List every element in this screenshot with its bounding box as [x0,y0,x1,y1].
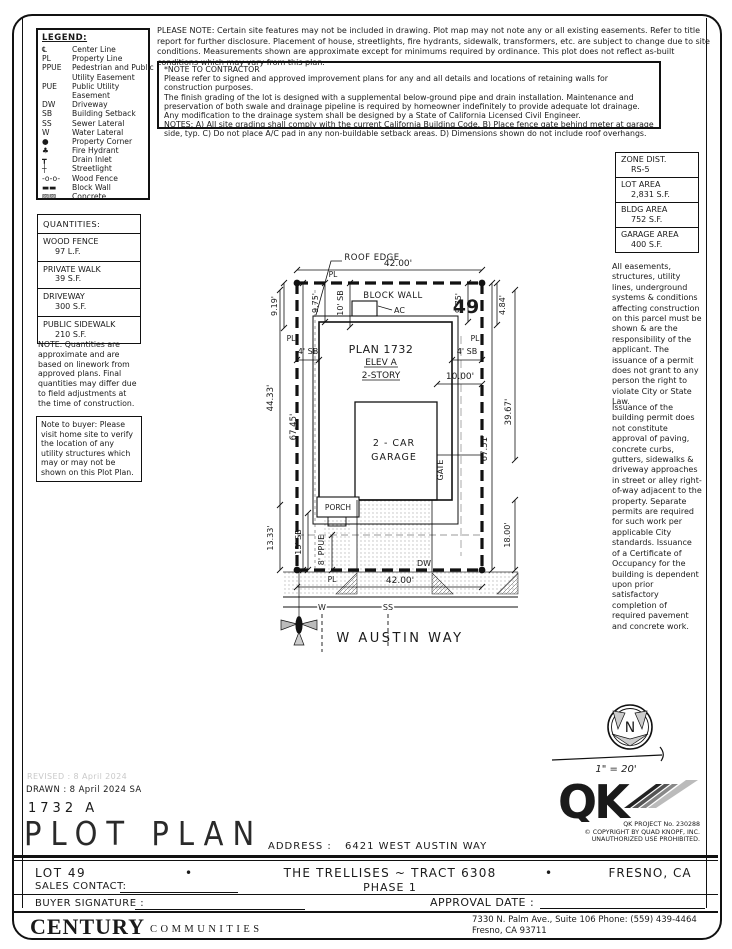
legend-title: LEGEND: [42,33,144,43]
dim-975-right: 9.75' [454,293,463,313]
address-label: ADDRESS : [268,841,332,852]
builder-brand-sub: COMMUNITIES [150,924,263,935]
plan-elevation: ELEV A [365,358,397,368]
north-arrow-and-scale: N 1" = 20' [548,693,680,777]
property-corner-icon: ● [42,137,68,146]
legend-item: SSSewer Lateral [42,119,144,128]
water-abbrev: W [42,128,68,137]
approval-date-line [540,896,705,909]
note-to-buyer: Note to buyer: Please visit home site to… [36,416,142,482]
legend-item-cont: Easement [42,91,144,100]
dim-10sb: 10' SB [336,290,345,316]
builder-brand: CENTURY [30,914,145,940]
plan-id: 1732 A [28,801,98,816]
street-name: W AUSTIN WAY [336,631,463,646]
zone-dist-cell: ZONE DIST.RS-5 [616,153,698,178]
sales-contact-label: SALES CONTACT: [35,881,126,892]
easements-note: All easements, structures, utility lines… [612,262,702,408]
phase-label: PHASE 1 [250,881,530,894]
inner-border-left [22,18,23,908]
ac-pad-label: AC [394,306,405,315]
lot-area-cell: LOT AREA2,831 S.F. [616,178,698,203]
quantities-table: QUANTITIES: WOOD FENCE97 L.F. PRIVATE WA… [37,214,141,344]
dim-484: 4.84' [498,295,507,315]
gate-label: GATE [436,460,445,481]
contractor-note-body2: The finish grading of the lot is designe… [164,93,654,121]
address-value: 6421 WEST AUSTIN WAY [345,841,487,852]
legend-item: DWDriveway [42,100,144,109]
streetlight-icon: ┼ [42,164,68,173]
driveway-label: DW [417,559,431,568]
inner-border-right [706,18,707,908]
private-walk-cell: PRIVATE WALK39 S.F. [38,262,140,290]
footer-divider-1 [12,894,718,895]
dim-1000: 10.00' [446,372,474,382]
setback-abbrev: SB [42,109,68,118]
dim-lot-width-top: 42.00' [384,259,412,269]
plan-stories: 2-STORY [362,371,401,381]
zoning-table: ZONE DIST.RS-5 LOT AREA2,831 S.F. BLDG A… [615,152,699,253]
legend-item: ▨▨Concrete [42,192,144,201]
wood-fence-icon: -o-o- [42,174,68,183]
footer-divider-2 [12,911,718,913]
centerline-icon: ℄ [42,45,68,54]
double-rule-bottom [12,860,718,861]
garage-label-2: GARAGE [371,452,417,463]
concrete-icon: ▨▨ [42,192,68,201]
bldg-area-cell: BLDG AREA752 S.F. [616,203,698,228]
bullet-separator: • [185,866,192,880]
legend-item: PLProperty Line [42,54,144,63]
qk-project-number: QK PROJECT No. 230288 [560,821,700,828]
legend-item: ┳Drain Inlet [42,155,144,164]
block-wall-label: BLOCK WALL [363,291,422,301]
legend-item: ♣Fire Hydrant [42,146,144,155]
plot-plan-document: LEGEND: ℄Center Line PLProperty Line PPU… [0,0,732,949]
wood-fence-cell: WOOD FENCE97 L.F. [38,234,140,262]
water-lateral-label: W [318,603,326,612]
lot-label: LOT 49 [35,866,86,880]
legend-item: ●Property Corner [42,137,144,146]
city-label: FRESNO, CA [590,866,710,880]
permit-note: Issuance of the building permit does not… [612,403,702,632]
revised-date: REVISED : 8 April 2024 [27,772,127,781]
legend-item: ┼Streetlight [42,164,144,173]
drawn-date: DRAWN : 8 April 2024 SA [26,785,142,795]
setback-4-left: 4' SB [298,347,318,356]
streetlight-symbol [281,617,317,646]
dim-4433: 44.33' [266,385,276,412]
property-line-label-right: PL [471,334,481,343]
contractor-note-body3: NOTES: A) All site grading shall comply … [164,120,654,138]
fire-hydrant-icon: ♣ [42,146,68,155]
legend-item-cont: Utility Easement [42,73,144,82]
community-name: THE TRELLISES ~ TRACT 6308 [250,866,530,880]
dim-3967: 39.67' [504,399,514,426]
sheet-title: PLOT PLAN [24,815,263,853]
dim-6751: 67.51' [480,435,490,462]
legend-item: PPUEPedestrian and Public [42,63,144,72]
porch-label: PORCH [325,503,351,512]
contractor-note-body1: Please refer to signed and approved impr… [164,74,654,92]
office-address-line2: Fresno, CA 93711 [472,926,547,936]
sewer-abbrev: SS [42,119,68,128]
property-line-label-left: PL [287,334,297,343]
legend: LEGEND: ℄Center Line PLProperty Line PPU… [36,28,150,200]
garage-area-cell: GARAGE AREA400 S.F. [616,228,698,252]
property-line-label-top: PL [329,270,339,279]
office-address-line1: 7330 N. Palm Ave., Suite 106 Phone: (559… [472,915,697,925]
setback-13: 13' SB [294,529,303,555]
site-plan-drawing: ROOF EDGE PL 42.00' BLOCK WALL 49 AC 9.1… [250,240,540,660]
buyer-signature-label: BUYER SIGNATURE : [35,898,144,909]
contractor-note-title: *NOTE TO CONTRACTOR [164,65,654,74]
plan-name: PLAN 1732 [349,343,414,356]
setback-4-right: 4' SB [457,347,477,356]
quantities-note: NOTE: Quantities are approximate and are… [38,340,140,409]
ppue-label: 8' PPUE [317,535,326,565]
qk-rights: UNAUTHORIZED USE PROHIBITED. [560,836,700,843]
qk-initials: QK [558,776,632,822]
driveway-cell: DRIVEWAY300 S.F. [38,289,140,317]
qk-logo: QK [552,776,702,822]
dim-919: 9.19' [270,296,279,316]
sewer-lateral-label: SS [383,603,393,612]
legend-item: ▬▬Block Wall [42,183,144,192]
legend-item: WWater Lateral [42,128,144,137]
legend-item: PUEPublic Utility [42,82,144,91]
bullet-separator: • [545,866,552,880]
dim-1800: 18.00' [503,522,512,547]
dim-lot-width-bottom: 42.00' [386,576,414,586]
scale-label: 1" = 20' [595,764,636,775]
legend-item: -o-o-Wood Fence [42,174,144,183]
pue-abbrev: PUE [42,82,68,91]
double-rule-top [12,855,718,858]
sales-contact-line [120,880,238,893]
dim-6745: 67.45' [289,414,299,441]
north-label: N [625,720,635,736]
garage-label-1: 2 - CAR [373,438,415,449]
qk-copyright: © COPYRIGHT BY QUAD KNOPF, INC. [560,829,700,836]
dim-1333: 13.33' [266,525,275,550]
quantities-title: QUANTITIES: [38,215,140,234]
north-arrow-icon: N [608,705,652,749]
scale-bar: 1" = 20' [552,747,663,775]
property-line-label-bottom: PL [328,575,338,584]
approval-date-label: APPROVAL DATE : [430,896,534,909]
block-wall-icon: ▬▬ [42,183,68,192]
note-to-contractor: *NOTE TO CONTRACTOR Please refer to sign… [157,61,661,129]
buyer-signature-line [135,897,305,910]
property-line-icon: PL [42,54,68,63]
driveway-abbrev: DW [42,100,68,109]
ppue-abbrev: PPUE [42,63,68,72]
legend-item: SBBuilding Setback [42,109,144,118]
dim-975-left: 9.75' [311,293,320,313]
legend-item: ℄Center Line [42,45,144,54]
